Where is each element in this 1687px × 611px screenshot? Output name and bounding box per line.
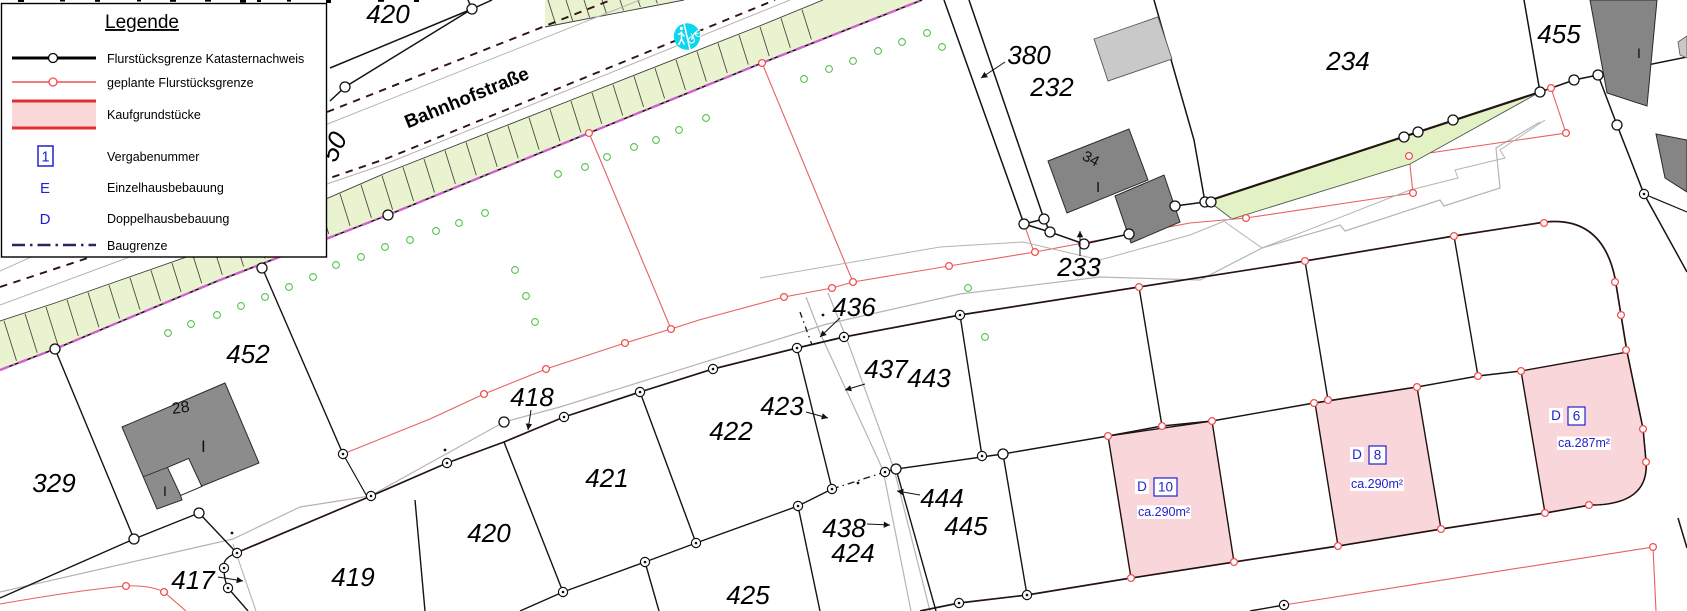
- svg-text:423: 423: [760, 391, 804, 421]
- svg-text:8: 8: [1374, 448, 1382, 463]
- svg-text:Vergabenummer: Vergabenummer: [107, 150, 199, 164]
- svg-text:425: 425: [726, 580, 770, 610]
- svg-text:421: 421: [585, 463, 628, 493]
- svg-text:420: 420: [467, 518, 511, 548]
- svg-text:Einzelhausbebauung: Einzelhausbebauung: [107, 181, 224, 195]
- svg-text:Flurstücksgrenze Katasternachw: Flurstücksgrenze Katasternachweis: [107, 52, 304, 66]
- svg-text:ca.290m²: ca.290m²: [1351, 477, 1403, 491]
- svg-text:444: 444: [920, 483, 963, 513]
- svg-text:1: 1: [41, 150, 49, 166]
- svg-text:6: 6: [1573, 409, 1581, 424]
- svg-text:Legende: Legende: [105, 12, 179, 33]
- svg-text:455: 455: [1537, 19, 1581, 49]
- svg-text:I: I: [201, 437, 206, 456]
- svg-text:Doppelhausbebauung: Doppelhausbebauung: [107, 212, 229, 226]
- svg-text:417: 417: [171, 565, 216, 595]
- svg-text:I: I: [1096, 179, 1100, 196]
- svg-text:ca.290m²: ca.290m²: [1138, 505, 1190, 519]
- svg-text:422: 422: [709, 416, 753, 446]
- svg-text:443: 443: [907, 363, 951, 393]
- svg-text:420: 420: [366, 0, 410, 29]
- svg-text:I: I: [1637, 45, 1641, 61]
- svg-text:Kaufgrundstücke: Kaufgrundstücke: [107, 108, 201, 122]
- svg-text:329: 329: [32, 468, 75, 498]
- svg-text:232: 232: [1029, 72, 1074, 102]
- svg-text:437: 437: [864, 354, 909, 384]
- svg-text:234: 234: [1325, 46, 1369, 76]
- svg-text:452: 452: [226, 339, 270, 369]
- svg-text:445: 445: [944, 511, 988, 541]
- svg-text:436: 436: [832, 292, 876, 322]
- svg-text:D: D: [1551, 408, 1561, 423]
- svg-text:D: D: [40, 211, 51, 228]
- svg-text:Baugrenze: Baugrenze: [107, 239, 168, 253]
- svg-text:233: 233: [1056, 252, 1101, 282]
- svg-text:I: I: [163, 483, 167, 499]
- svg-text:E: E: [40, 180, 50, 197]
- svg-text:ca.287m²: ca.287m²: [1558, 436, 1610, 450]
- svg-text:10: 10: [1158, 480, 1173, 495]
- svg-text:28: 28: [171, 399, 191, 418]
- svg-text:D: D: [1352, 447, 1362, 462]
- svg-text:418: 418: [510, 382, 554, 412]
- svg-text:D: D: [1137, 479, 1147, 494]
- svg-text:380: 380: [1007, 40, 1051, 70]
- svg-text:geplante Flurstücksgrenze: geplante Flurstücksgrenze: [107, 76, 254, 90]
- svg-text:419: 419: [331, 562, 374, 592]
- svg-text:438: 438: [822, 513, 866, 543]
